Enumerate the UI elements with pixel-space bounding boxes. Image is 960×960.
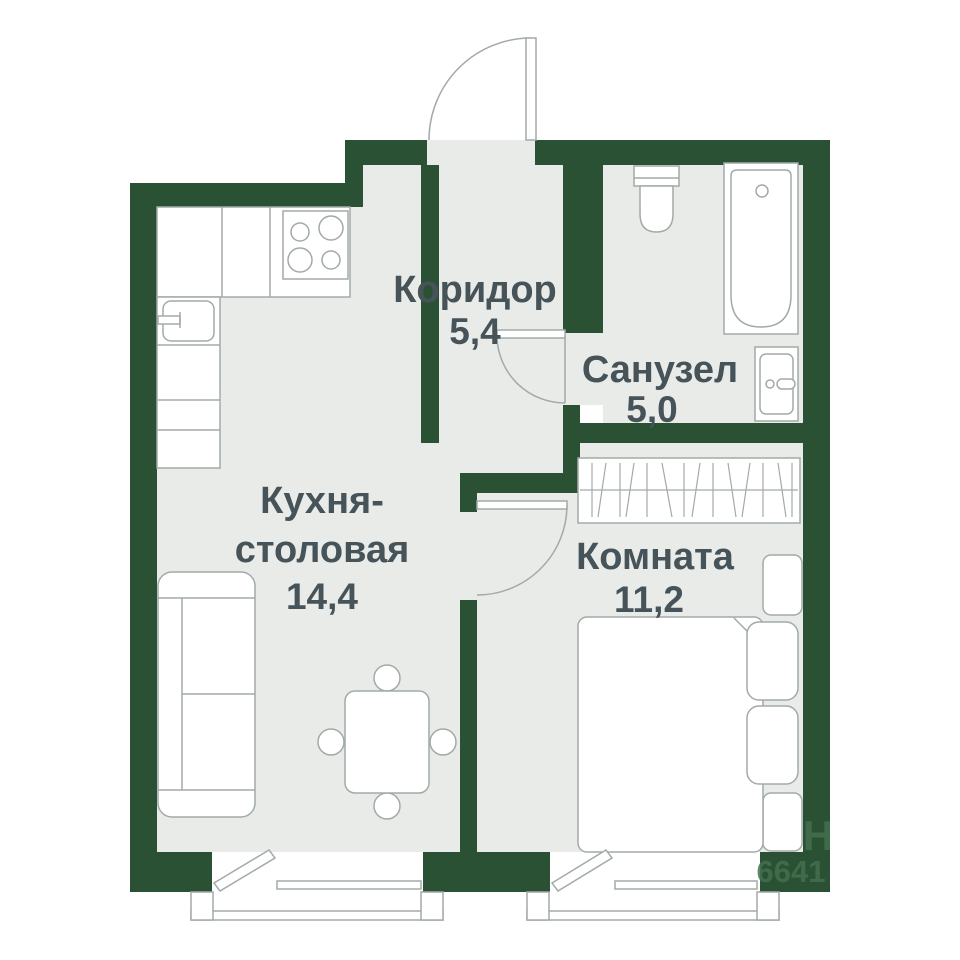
bedroom-window-glazing — [615, 881, 757, 889]
entrance-threshold — [427, 140, 535, 165]
bathroom-label: Санузел — [582, 349, 738, 391]
sofa — [158, 572, 255, 817]
wall-right — [803, 140, 830, 892]
chair-icon — [430, 729, 456, 755]
bedroom-floor-b — [477, 493, 578, 852]
watermark-digits: 6641 — [757, 854, 826, 889]
bedroom-area: 11,2 — [614, 579, 684, 620]
wall-bottom-b — [423, 852, 550, 892]
kitchen-balcony-rail — [191, 911, 443, 920]
kitchen-area: 14,4 — [286, 576, 358, 617]
kitchen-label-line1: Кухня- — [260, 480, 384, 522]
bedroom-balcony-post — [527, 892, 549, 920]
wall-corridor-bedroom — [460, 473, 578, 493]
bedroom-balcony-rail — [527, 911, 779, 920]
kitchen-balcony-post — [191, 892, 213, 920]
burner-icon — [319, 216, 343, 240]
watermark-letter: Н — [803, 812, 833, 859]
corridor-label: Коридор — [393, 269, 557, 311]
nightstand-top — [763, 555, 802, 615]
bedroom-label: Комната — [576, 536, 735, 578]
basin-faucet-handle — [777, 379, 795, 389]
wall-bedroom-stub — [460, 493, 477, 512]
corridor-area: 5,4 — [449, 311, 501, 352]
kitchen-window-glazing — [277, 881, 421, 889]
kitchen-label-line2: столовая — [235, 529, 410, 571]
wall-top-left-of-entrance — [345, 140, 427, 165]
dining-table — [345, 691, 429, 793]
kitchen-faucet-icon — [158, 316, 180, 324]
wall-bathroom-bottom — [563, 423, 803, 443]
chair-icon — [318, 729, 344, 755]
burner-icon — [288, 248, 312, 272]
bedroom-window-casement — [552, 850, 612, 891]
burner-icon — [322, 251, 340, 269]
wall-corridor-bathroom-upper — [563, 165, 603, 333]
pillow-icon — [747, 706, 798, 784]
nightstand-bottom — [763, 793, 802, 851]
wall-kitchen-top — [130, 183, 363, 207]
toilet-bowl-icon — [640, 186, 673, 232]
toilet-tank-icon — [634, 166, 679, 186]
bed — [578, 617, 763, 852]
burner-icon — [291, 223, 309, 241]
floor-plan: Коридор 5,4 Санузел 5,0 Кухня- столовая … — [0, 0, 960, 960]
bathroom-door-leaf — [497, 330, 565, 338]
wall-bottom-a — [130, 852, 212, 892]
basin-faucet-dot — [766, 380, 774, 388]
bedroom-balcony-post — [757, 892, 779, 920]
wall-top-right-of-entrance — [535, 140, 830, 165]
chair-icon — [374, 793, 400, 819]
wall-bedroom-left — [460, 600, 477, 852]
bedroom-furniture — [578, 458, 802, 852]
wall-left — [130, 183, 157, 892]
kitchen-floor-extension — [421, 443, 460, 852]
floor-plan-canvas: Коридор 5,4 Санузел 5,0 Кухня- столовая … — [0, 0, 960, 960]
chair-icon — [374, 665, 400, 691]
bathroom-area: 5,0 — [626, 389, 677, 430]
entrance-door-swing-arc — [429, 38, 531, 140]
bedroom-door-leaf — [477, 501, 567, 509]
kitchen-balcony-post — [421, 892, 443, 920]
pillow-icon — [747, 622, 798, 700]
entrance-door-leaf — [526, 38, 536, 140]
bedroom-door-gap-floor — [460, 512, 477, 600]
kitchen-window-casement — [214, 850, 275, 891]
bathtub-drain-icon — [756, 185, 768, 197]
corridor-floor-notch — [363, 165, 421, 207]
